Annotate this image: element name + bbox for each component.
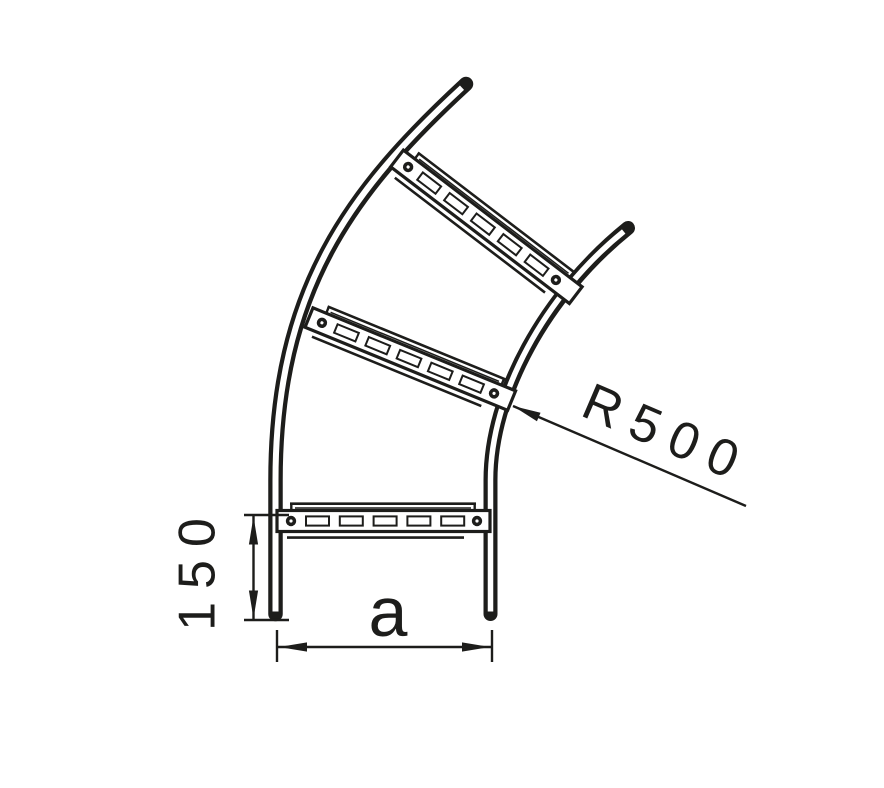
technical-drawing-canvas: 150 a R500 bbox=[0, 0, 884, 788]
dim-a-arrow-left-icon bbox=[279, 642, 307, 651]
rung-middle bbox=[303, 301, 518, 415]
rung-slot bbox=[441, 516, 464, 525]
dim-150-label: 150 bbox=[169, 505, 227, 631]
dim-150-arrow-up-icon bbox=[249, 517, 258, 545]
rung-lower-edge-line bbox=[395, 178, 545, 293]
dim-a-arrow-right-icon bbox=[462, 642, 490, 651]
bolt-dot-center bbox=[475, 519, 478, 522]
rung-top bbox=[387, 145, 586, 309]
dim-radius-label: R500 bbox=[574, 373, 759, 496]
dim-r500-arrow-icon bbox=[511, 402, 540, 421]
rung-slot bbox=[340, 516, 363, 525]
rung-slot bbox=[407, 516, 430, 525]
ladder-bend-drawing: 150 a R500 bbox=[0, 0, 884, 788]
dim-width-label: a bbox=[369, 573, 408, 651]
rung-slot bbox=[306, 516, 329, 525]
rung-flange-bottom-line bbox=[419, 159, 568, 273]
rung-bottom bbox=[277, 504, 490, 538]
rung-slot bbox=[374, 516, 397, 525]
dim-150-arrow-down-icon bbox=[249, 591, 258, 619]
bolt-dot-center bbox=[289, 519, 292, 522]
